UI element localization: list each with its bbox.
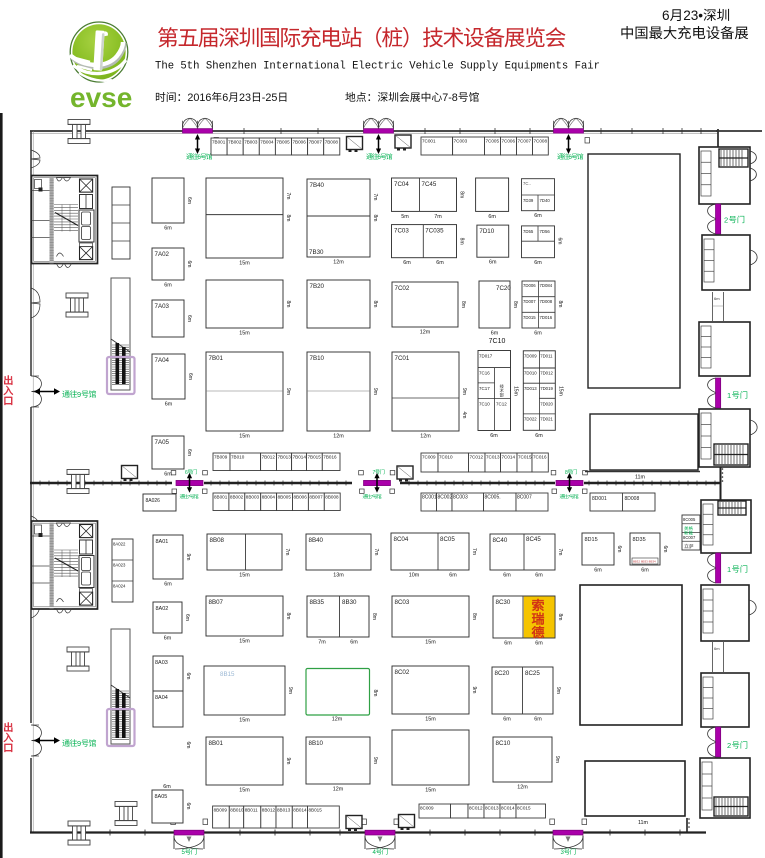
svg-text:1: 1	[727, 565, 731, 574]
svg-text:6m: 6m	[535, 573, 543, 579]
svg-text:6m: 6m	[185, 803, 191, 810]
svg-text:6m: 6m	[490, 433, 498, 439]
svg-text:12m: 12m	[420, 434, 431, 440]
svg-text:1: 1	[727, 391, 731, 400]
svg-text:15m: 15m	[239, 788, 250, 794]
svg-text:8B009: 8B009	[214, 808, 228, 813]
svg-text:8A04: 8A04	[155, 695, 168, 701]
svg-text:9m: 9m	[471, 687, 477, 694]
svg-text:7D10: 7D10	[479, 228, 494, 235]
svg-text:8B011: 8B011	[245, 808, 258, 813]
svg-text:15m: 15m	[425, 788, 436, 794]
svg-text:9m: 9m	[287, 687, 293, 694]
svg-text:6m: 6m	[403, 260, 411, 266]
svg-text:8A026: 8A026	[146, 498, 161, 504]
svg-text:7m: 7m	[373, 549, 379, 556]
svg-text:8m: 8m	[512, 301, 518, 308]
svg-text:12m: 12m	[332, 717, 343, 723]
svg-text:8D008: 8D008	[625, 496, 640, 502]
svg-text:6m: 6m	[164, 226, 172, 232]
svg-text:9m: 9m	[285, 758, 291, 765]
svg-text:8C45: 8C45	[526, 536, 541, 543]
svg-text:8B15: 8B15	[220, 671, 235, 678]
svg-text:9: 9	[77, 739, 81, 748]
svg-text:7C16: 7C16	[479, 371, 490, 376]
svg-text:8C005: 8C005	[683, 517, 696, 522]
svg-text:7D40: 7D40	[540, 198, 551, 203]
svg-text:7C03: 7C03	[394, 228, 409, 235]
svg-text:6m: 6m	[165, 402, 173, 408]
svg-text:7-8: 7-8	[442, 92, 458, 104]
svg-text:7C10: 7C10	[479, 402, 490, 407]
svg-text:7D009: 7D009	[524, 354, 537, 359]
svg-text:7D020: 7D020	[540, 402, 553, 407]
svg-text:7B008: 7B008	[325, 140, 339, 145]
svg-text:6m: 6m	[186, 315, 192, 322]
svg-text:8A023: 8A023	[113, 563, 126, 568]
svg-text:7C012: 7C012	[470, 455, 484, 460]
svg-text:-25: -25	[262, 92, 278, 104]
svg-text:9m: 9m	[555, 687, 561, 694]
svg-text:8C03: 8C03	[395, 599, 410, 606]
svg-text:9m: 9m	[554, 756, 560, 763]
svg-text:6m: 6m	[535, 433, 543, 439]
svg-text:8B002: 8B002	[230, 495, 244, 500]
svg-text:8C009: 8C009	[420, 806, 434, 811]
svg-text:8B01: 8B01	[209, 740, 224, 747]
svg-text:7C45: 7C45	[422, 181, 437, 188]
svg-text:5m: 5m	[401, 214, 409, 220]
svg-text:6m: 6m	[164, 283, 172, 289]
svg-text:8m: 8m	[285, 613, 291, 620]
svg-text:9m: 9m	[461, 388, 467, 395]
svg-text:8C012: 8C012	[469, 806, 483, 811]
svg-text:15m: 15m	[239, 718, 250, 724]
svg-text:7C016: 7C016	[533, 455, 547, 460]
svg-text:6m: 6m	[436, 260, 444, 266]
svg-text:15m: 15m	[513, 386, 519, 396]
svg-text:6: 6	[222, 92, 228, 104]
svg-text:6m: 6m	[534, 260, 542, 266]
svg-text:15m: 15m	[558, 386, 564, 396]
svg-text:6: 6	[185, 470, 188, 476]
svg-text:8m: 8m	[460, 301, 466, 308]
svg-text:8C20: 8C20	[495, 670, 510, 677]
svg-text:8B005: 8B005	[278, 495, 292, 500]
svg-text:7A04: 7A04	[155, 357, 170, 364]
svg-text:6m: 6m	[186, 197, 192, 204]
svg-text:7C12: 7C12	[496, 402, 507, 407]
svg-text:萨: 萨	[689, 543, 694, 550]
svg-text:12m: 12m	[333, 787, 344, 793]
svg-text:8D15: 8D15	[585, 537, 598, 543]
svg-text:8C015: 8C015	[517, 806, 531, 811]
svg-text:11m: 11m	[635, 475, 646, 481]
svg-text:6m: 6m	[535, 641, 543, 647]
svg-text:6m: 6m	[594, 568, 602, 574]
svg-text:7C02: 7C02	[395, 285, 410, 292]
svg-text:7C009: 7C009	[422, 455, 436, 460]
svg-text:The 5th Shenzhen International: The 5th Shenzhen International Electric …	[155, 61, 600, 73]
svg-text:7C035: 7C035	[425, 228, 444, 235]
svg-text:8B012: 8B012	[262, 808, 276, 813]
svg-text:7: 7	[568, 494, 571, 499]
svg-text:15m: 15m	[239, 434, 250, 440]
svg-text:12m: 12m	[333, 434, 344, 440]
svg-text:8m: 8m	[557, 614, 563, 621]
svg-text:23: 23	[239, 92, 251, 104]
svg-text:8C007: 8C007	[683, 535, 696, 540]
svg-text:7D008: 7D008	[540, 299, 553, 304]
svg-text:8m: 8m	[285, 301, 291, 308]
svg-text:7D084: 7D084	[540, 283, 553, 288]
svg-text:8C04: 8C04	[394, 536, 409, 543]
svg-text:8B10: 8B10	[309, 740, 324, 747]
svg-text:7B10: 7B10	[310, 355, 325, 362]
svg-text:12m: 12m	[420, 330, 431, 336]
svg-text:4m: 4m	[461, 412, 467, 419]
svg-text:7D010: 7D010	[524, 371, 537, 376]
svg-text:7B015: 7B015	[308, 455, 322, 460]
svg-text:15m: 15m	[425, 640, 436, 646]
svg-text:7D019: 7D019	[540, 386, 553, 391]
svg-text:6: 6	[568, 154, 572, 161]
svg-text:7C014: 7C014	[502, 455, 516, 460]
svg-text:7B002: 7B002	[228, 140, 242, 145]
svg-text:6m: 6m	[534, 717, 542, 723]
svg-text:6m: 6m	[164, 582, 172, 588]
svg-text:7C007: 7C007	[518, 139, 532, 144]
svg-text:15m: 15m	[425, 717, 436, 723]
svg-text:7B016: 7B016	[323, 455, 337, 460]
svg-text:7: 7	[373, 470, 376, 476]
svg-text:8m: 8m	[285, 215, 291, 222]
svg-text:8m: 8m	[372, 690, 378, 697]
svg-text:7C001: 7C001	[422, 139, 436, 144]
svg-text:8C014: 8C014	[501, 806, 515, 811]
svg-text:7C003: 7C003	[454, 139, 468, 144]
svg-text:7A02: 7A02	[155, 251, 170, 258]
svg-text:7A05: 7A05	[155, 439, 170, 446]
svg-text:8B007: 8B007	[309, 495, 323, 500]
svg-text:6m: 6m	[662, 546, 668, 553]
svg-text:7B30: 7B30	[309, 249, 324, 256]
svg-text:7C17: 7C17	[479, 386, 490, 391]
svg-text:8A024: 8A024	[113, 584, 126, 589]
svg-text:3: 3	[561, 849, 565, 856]
svg-text:8B006: 8B006	[294, 495, 308, 500]
svg-text:8A01: 8A01	[156, 539, 169, 545]
svg-text:7A03: 7A03	[155, 303, 170, 310]
svg-text:2: 2	[727, 741, 731, 750]
svg-text:8B013: 8B013	[277, 808, 291, 813]
svg-text:6m: 6m	[491, 331, 499, 337]
svg-text:8: 8	[565, 470, 568, 476]
svg-text:6m: 6m	[185, 673, 191, 680]
svg-text:8C02: 8C02	[395, 669, 410, 676]
svg-text:12m: 12m	[333, 260, 344, 266]
svg-text:7m: 7m	[471, 548, 477, 555]
svg-text:7B40: 7B40	[310, 182, 325, 189]
svg-text:4: 4	[373, 849, 377, 856]
svg-text:15m: 15m	[239, 573, 250, 579]
svg-text:8B35: 8B35	[310, 599, 325, 606]
svg-text:6m: 6m	[534, 331, 542, 337]
svg-text:6m: 6m	[184, 614, 190, 621]
svg-text:6m: 6m	[714, 646, 720, 651]
svg-text:8B014: 8B014	[293, 808, 307, 813]
svg-text:6m: 6m	[164, 472, 172, 478]
svg-text:8m: 8m	[371, 613, 377, 620]
svg-text:8m: 8m	[459, 238, 465, 245]
svg-text:7B005: 7B005	[276, 140, 290, 145]
svg-text:13m: 13m	[333, 573, 344, 579]
svg-text:7D017: 7D017	[479, 354, 493, 359]
svg-text:7C015: 7C015	[518, 455, 532, 460]
svg-text:8A03: 8A03	[155, 660, 168, 666]
svg-text:7m: 7m	[284, 549, 290, 556]
svg-text:6m: 6m	[489, 260, 497, 266]
svg-text:6m: 6m	[350, 640, 358, 646]
svg-text:7C010: 7C010	[439, 455, 453, 460]
svg-text:7C20: 7C20	[496, 285, 511, 292]
svg-text:6m: 6m	[449, 573, 457, 579]
svg-text:6m: 6m	[616, 546, 622, 553]
svg-text:7D007: 7D007	[523, 299, 536, 304]
svg-text:6m: 6m	[488, 214, 496, 220]
svg-text:7m: 7m	[434, 214, 442, 220]
svg-text:10m: 10m	[409, 573, 420, 579]
svg-text:15m: 15m	[239, 639, 250, 645]
svg-text:6: 6	[197, 154, 201, 161]
svg-text:7D021: 7D021	[540, 417, 553, 422]
svg-text:7B013: 7B013	[278, 455, 292, 460]
svg-text:8B001: 8B001	[214, 495, 228, 500]
svg-text:7C005: 7C005	[486, 139, 500, 144]
svg-text:9m: 9m	[285, 388, 291, 395]
svg-text:7: 7	[188, 494, 191, 499]
svg-text:6m: 6m	[714, 296, 720, 301]
svg-text:7m: 7m	[372, 194, 378, 201]
svg-text:7B01: 7B01	[209, 355, 224, 362]
svg-text:9m: 9m	[372, 388, 378, 395]
svg-text:6m: 6m	[185, 742, 191, 749]
svg-text:11m: 11m	[638, 820, 649, 826]
svg-text:7D39: 7D39	[523, 198, 534, 203]
svg-text:8B40: 8B40	[309, 537, 324, 544]
svg-text:8B004: 8B004	[262, 495, 276, 500]
svg-text:8m: 8m	[471, 613, 477, 620]
svg-text:7B014: 7B014	[293, 455, 307, 460]
svg-text:7C008: 7C008	[534, 139, 548, 144]
svg-text:8B08: 8B08	[210, 537, 225, 544]
svg-text:8m: 8m	[372, 215, 378, 222]
svg-text:7: 7	[371, 494, 374, 499]
svg-text:8C001: 8C001	[422, 495, 437, 501]
svg-text:9m: 9m	[372, 757, 378, 764]
svg-text:8A022: 8A022	[113, 542, 126, 547]
svg-text:15m: 15m	[239, 261, 250, 267]
svg-text:6m: 6m	[534, 213, 542, 219]
svg-text:8C25: 8C25	[525, 670, 540, 677]
svg-text:6m: 6m	[164, 636, 172, 642]
svg-text:7B20: 7B20	[310, 283, 325, 290]
svg-text:7B010: 7B010	[231, 455, 245, 460]
svg-text:8m: 8m	[372, 301, 378, 308]
svg-text:8B010: 8B010	[230, 808, 244, 813]
svg-text:8C003: 8C003	[453, 495, 468, 501]
svg-text:8B32 8B33 8B34: 8B32 8B33 8B34	[633, 560, 656, 564]
svg-text:9m: 9m	[185, 554, 191, 561]
svg-text:15m: 15m	[239, 331, 250, 337]
svg-text:7B012: 7B012	[262, 455, 276, 460]
svg-text:8D001: 8D001	[592, 496, 607, 502]
svg-text:6m: 6m	[503, 573, 511, 579]
svg-text:7B003: 7B003	[244, 140, 258, 145]
svg-text:2: 2	[724, 216, 728, 225]
svg-text:6m: 6m	[186, 449, 192, 456]
svg-text:8B008: 8B008	[325, 495, 339, 500]
svg-text:8B30: 8B30	[342, 599, 357, 606]
svg-text:7C01: 7C01	[395, 355, 410, 362]
svg-text:12m: 12m	[517, 785, 528, 791]
svg-text:7D015: 7D015	[523, 315, 536, 320]
svg-text:6: 6	[377, 154, 381, 161]
svg-text:7m: 7m	[557, 549, 563, 556]
svg-text:6m: 6m	[641, 568, 649, 574]
svg-text:6m: 6m	[557, 238, 563, 245]
svg-text:7B007: 7B007	[309, 140, 323, 145]
svg-text:8B07: 8B07	[209, 599, 224, 606]
svg-text:7C04: 7C04	[394, 181, 409, 188]
svg-text:9: 9	[77, 390, 81, 399]
svg-text:7B009: 7B009	[214, 455, 228, 460]
svg-text:7D55: 7D55	[523, 229, 534, 234]
svg-text:7D006: 7D006	[523, 283, 536, 288]
svg-text:8C30: 8C30	[496, 599, 511, 606]
svg-text:7m: 7m	[318, 640, 326, 646]
svg-text:5: 5	[182, 849, 186, 856]
svg-text:6m: 6m	[186, 261, 192, 268]
svg-text:8C10: 8C10	[496, 740, 511, 747]
svg-text:7D016: 7D016	[540, 315, 553, 320]
svg-text:8C40: 8C40	[493, 537, 508, 544]
svg-text:8B015: 8B015	[309, 808, 323, 813]
svg-text:8B003: 8B003	[246, 495, 260, 500]
svg-text:8C005.: 8C005.	[485, 495, 501, 501]
svg-text:8C05: 8C05	[440, 536, 455, 543]
svg-text:7B001: 7B001	[212, 140, 226, 145]
svg-text:7m: 7m	[285, 193, 291, 200]
svg-text:8C002: 8C002	[438, 495, 453, 501]
svg-text:6m: 6m	[504, 641, 512, 647]
svg-text:7C10: 7C10	[489, 338, 506, 345]
svg-text:7C006: 7C006	[502, 139, 516, 144]
svg-text:evse: evse	[70, 82, 132, 113]
svg-text:7C..: 7C..	[523, 181, 531, 186]
svg-text:8A02: 8A02	[156, 606, 169, 612]
svg-text:7C013: 7C013	[486, 455, 500, 460]
svg-text:8C007: 8C007	[517, 495, 532, 501]
svg-text:8m: 8m	[459, 191, 465, 198]
svg-text:6: 6	[662, 8, 670, 23]
svg-text:7D013: 7D013	[524, 386, 537, 391]
svg-text:7D022: 7D022	[524, 417, 537, 422]
svg-text:6m: 6m	[163, 784, 171, 790]
svg-text:6m: 6m	[187, 373, 193, 380]
svg-text:7B006: 7B006	[293, 140, 307, 145]
svg-text:7B004: 7B004	[260, 140, 274, 145]
svg-text:8D35: 8D35	[633, 537, 646, 543]
svg-text:23•: 23•	[683, 8, 703, 23]
svg-text:7D012: 7D012	[540, 371, 553, 376]
svg-text:8C013: 8C013	[485, 806, 499, 811]
svg-text:7D011: 7D011	[540, 354, 553, 359]
svg-text:6m: 6m	[503, 717, 511, 723]
svg-text:7D56: 7D56	[540, 229, 551, 234]
svg-text:2016: 2016	[187, 92, 211, 104]
svg-text:8A05: 8A05	[155, 794, 168, 800]
svg-text:8m: 8m	[557, 301, 563, 308]
